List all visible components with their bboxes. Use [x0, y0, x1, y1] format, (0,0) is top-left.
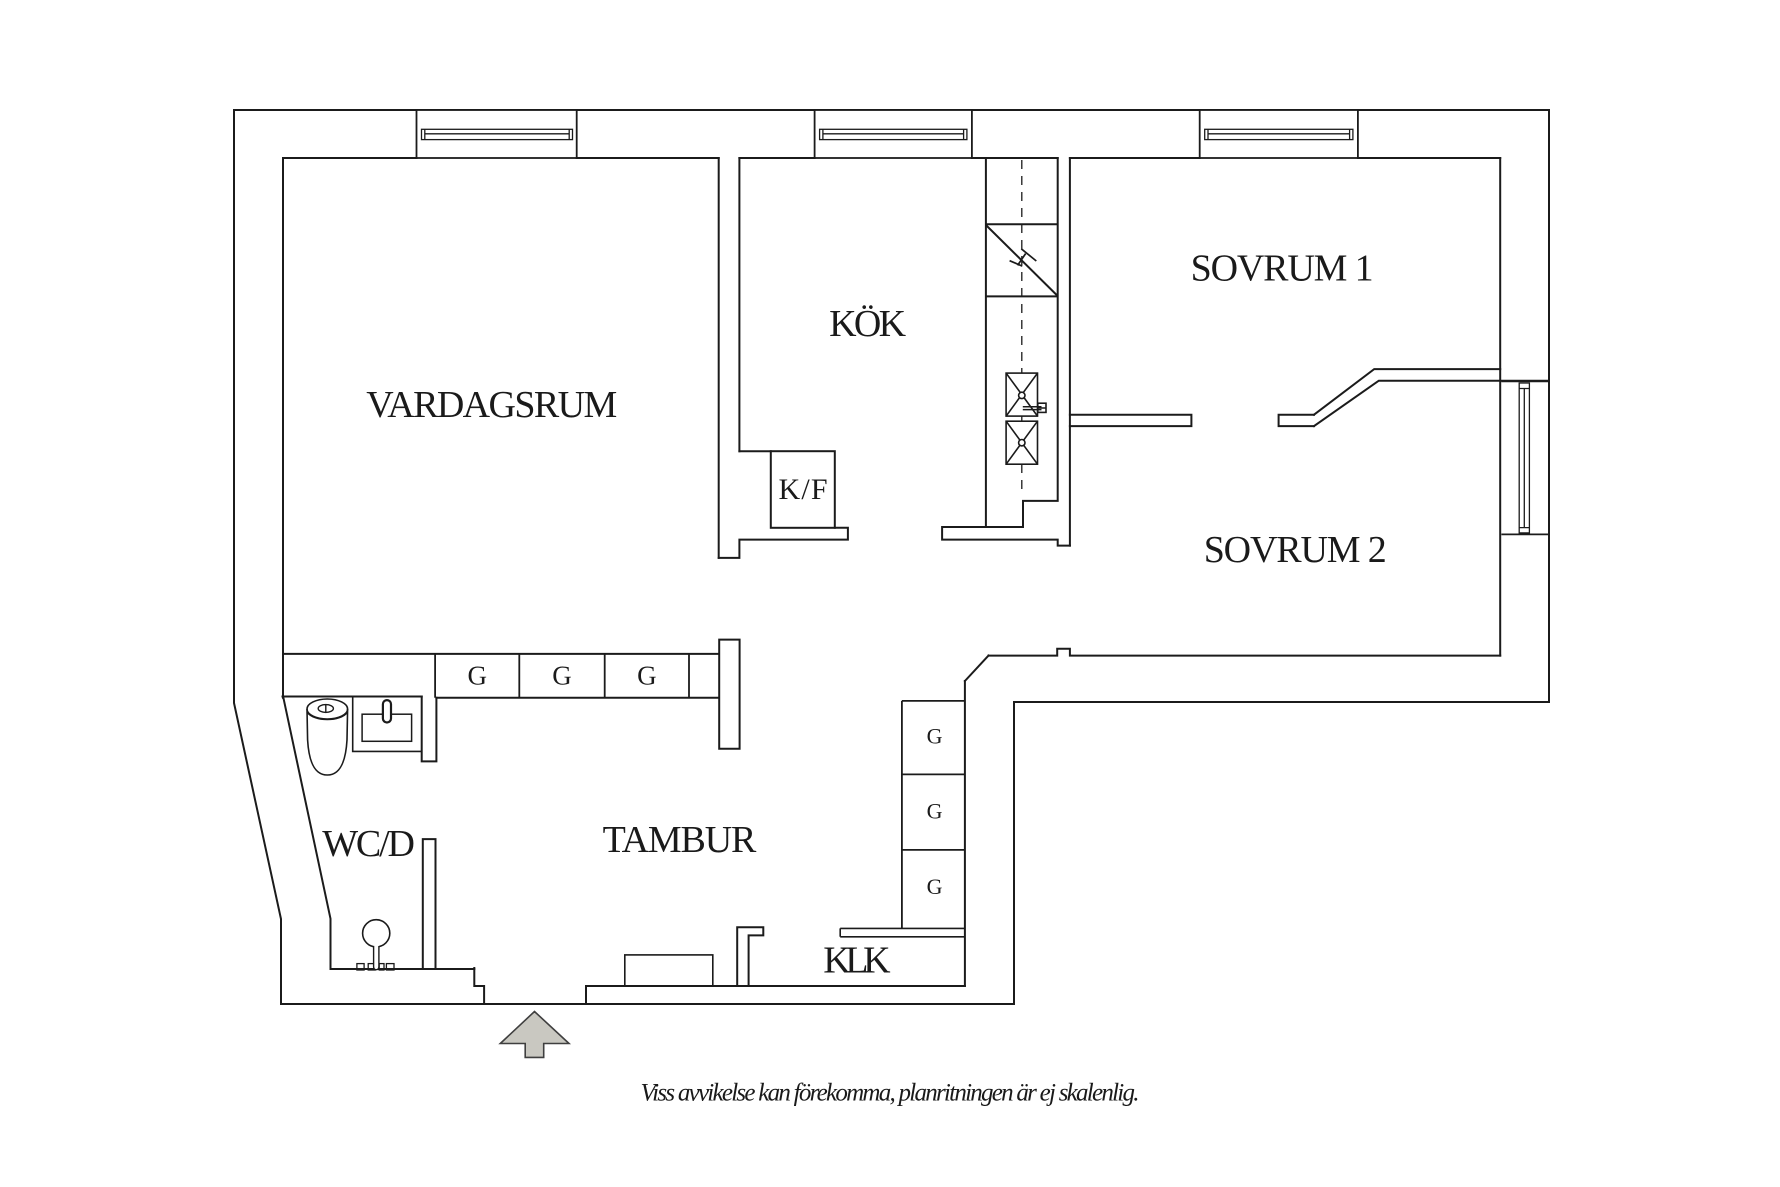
svg-text:VARDAGSRUM: VARDAGSRUM	[366, 384, 617, 426]
svg-text:G: G	[927, 874, 943, 899]
svg-text:G: G	[467, 661, 487, 691]
svg-text:SOVRUM 1: SOVRUM 1	[1191, 248, 1374, 290]
svg-text:G: G	[927, 799, 943, 824]
svg-text:K/F: K/F	[779, 473, 828, 506]
svg-text:G: G	[637, 661, 657, 691]
svg-text:G: G	[552, 661, 572, 691]
svg-text:G: G	[927, 724, 943, 749]
svg-text:KÖK: KÖK	[829, 303, 907, 345]
svg-text:Viss avvikelse kan förekomma,: Viss avvikelse kan förekomma, planritnin…	[641, 1080, 1140, 1107]
svg-text:TAMBUR: TAMBUR	[603, 819, 757, 861]
svg-text:KLK: KLK	[823, 940, 891, 982]
svg-text:WC/D: WC/D	[322, 823, 415, 865]
svg-text:SOVRUM 2: SOVRUM 2	[1204, 529, 1387, 571]
